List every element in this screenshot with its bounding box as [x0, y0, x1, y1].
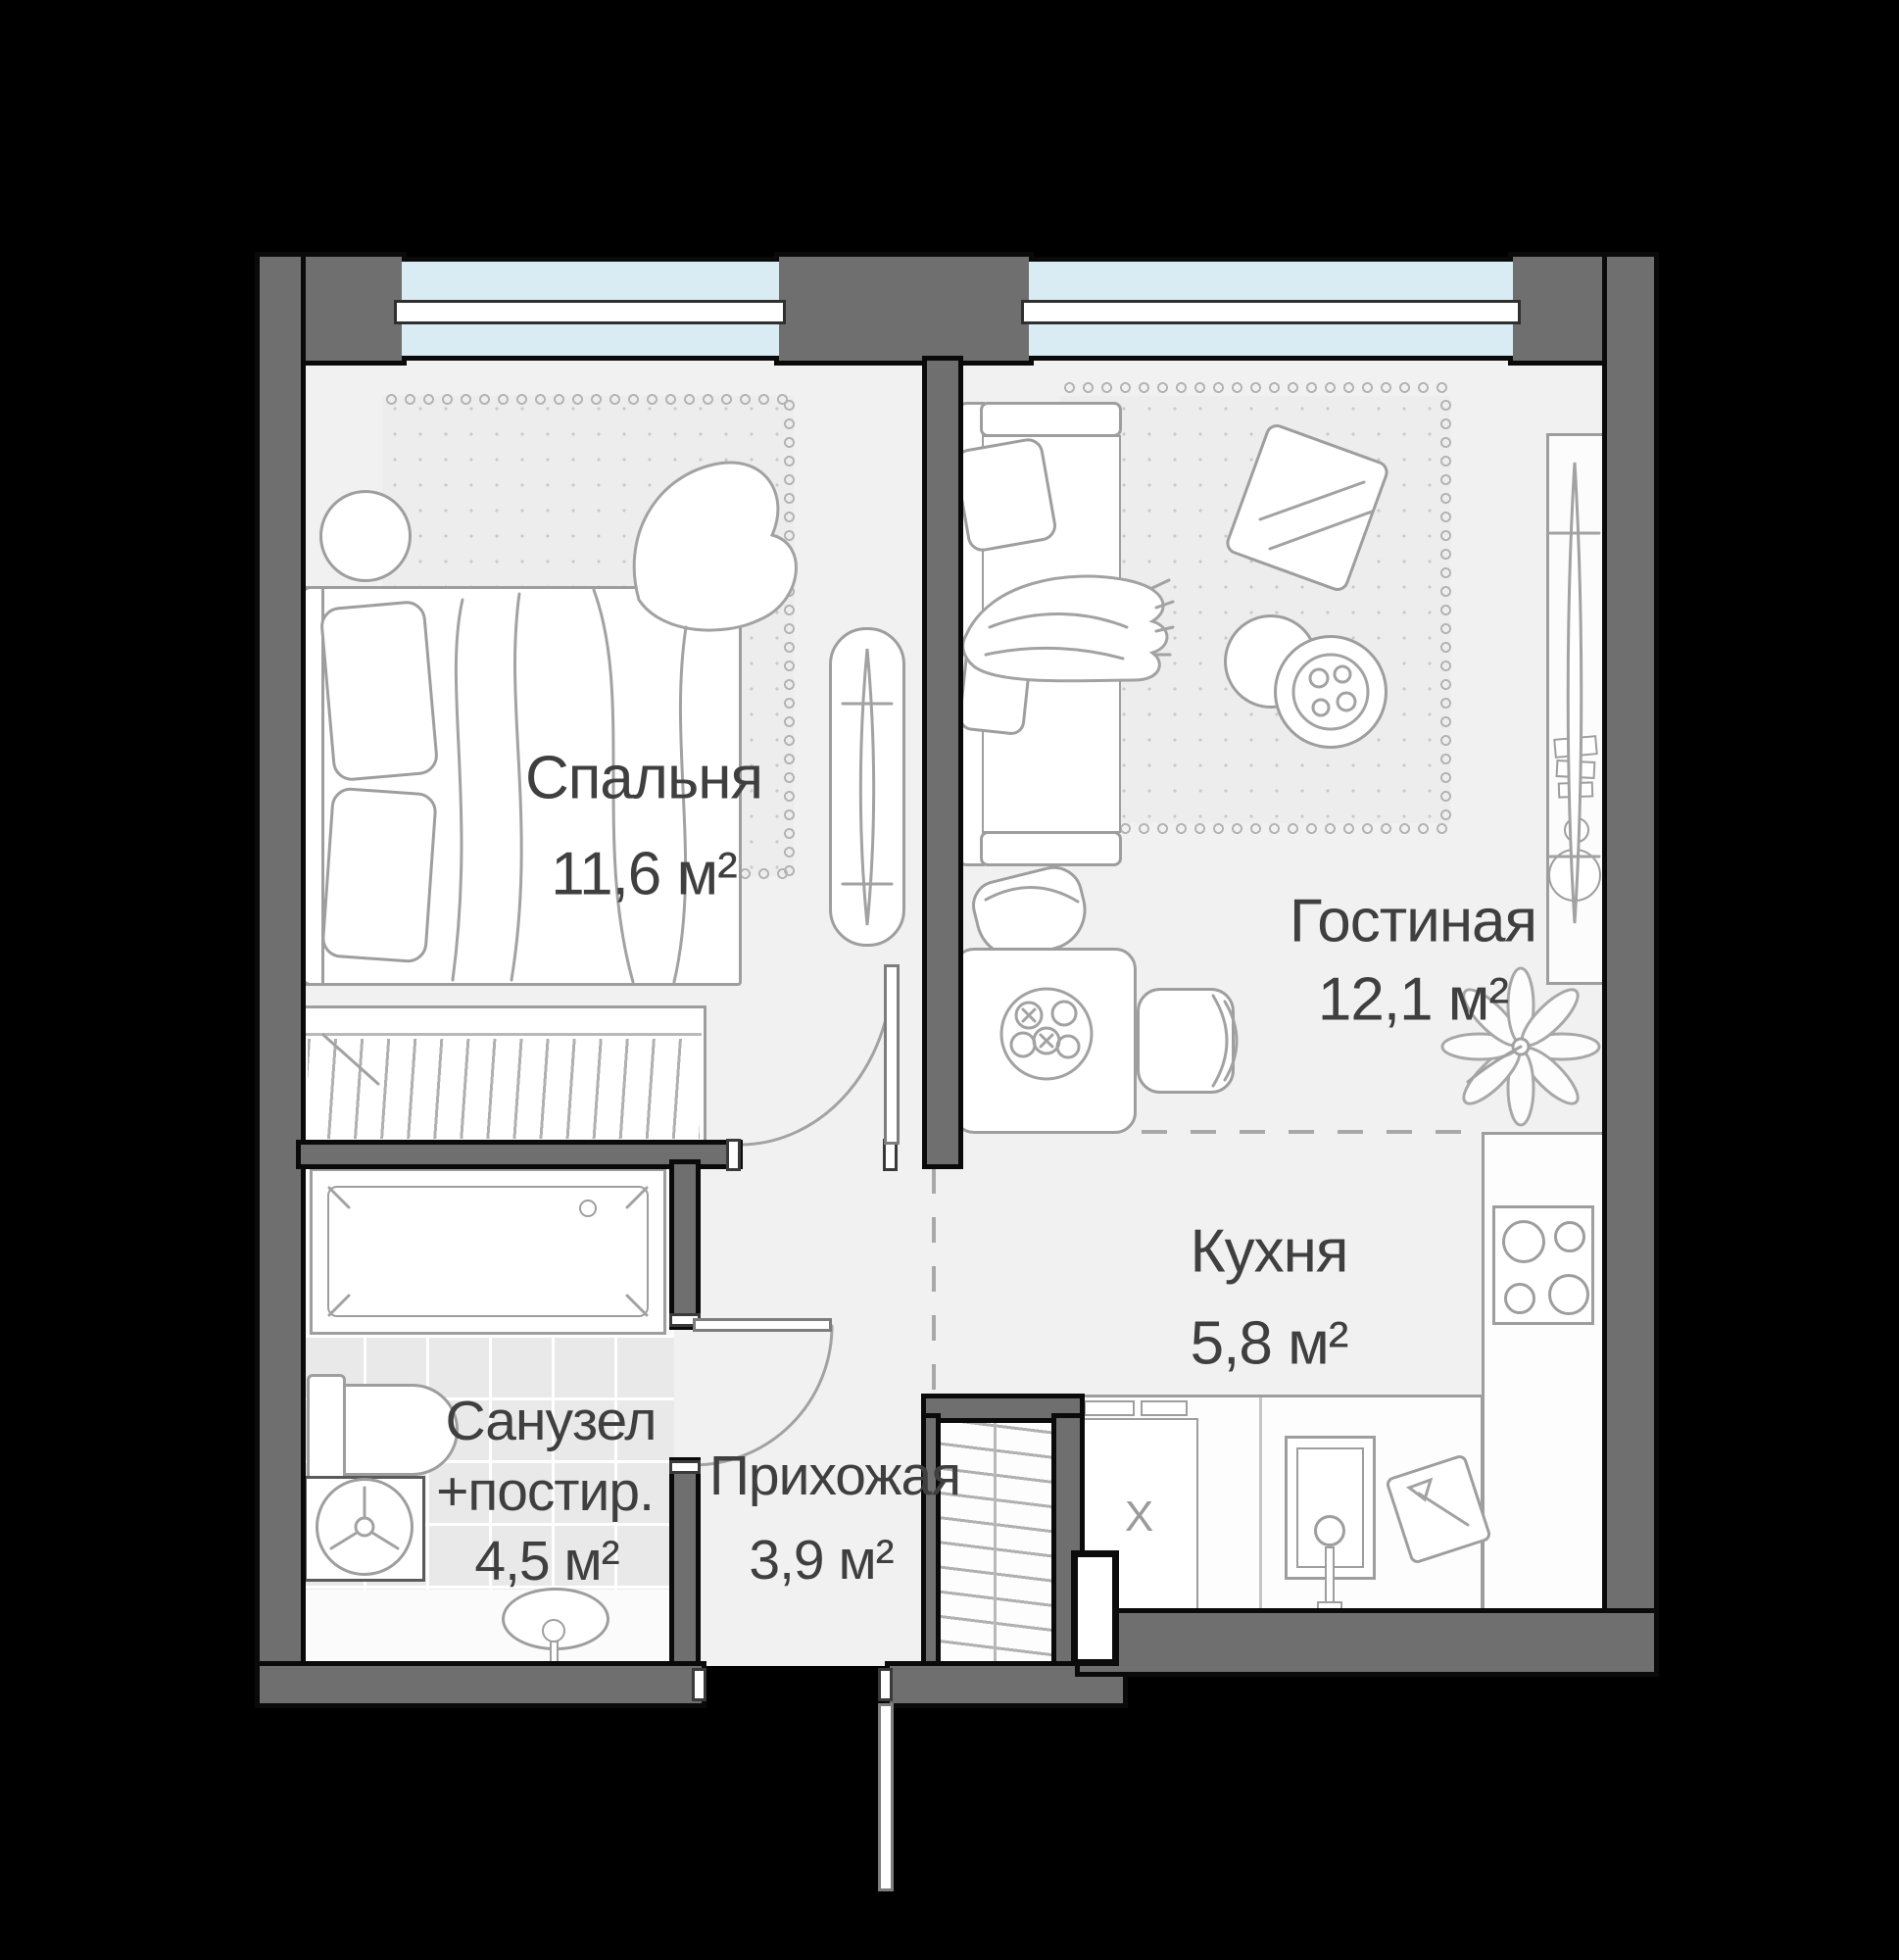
- label-kitchen-name: Кухня: [1191, 1217, 1348, 1287]
- wall-left: [260, 257, 301, 1703]
- entry-door-jamb: [692, 1668, 706, 1701]
- utility-niche: [1071, 1550, 1119, 1666]
- wall-bottom-left: [260, 1666, 702, 1703]
- wall-bathroom-right-lower: [674, 1462, 696, 1666]
- knife: [1409, 1480, 1468, 1525]
- wall-top-middle-pier: [779, 257, 1029, 361]
- wall-closet-top: [926, 1398, 1080, 1418]
- wall-bedroom-door: [301, 1145, 738, 1164]
- pouf-fold: [1260, 482, 1364, 519]
- label-hall-name: Прихожая: [709, 1444, 960, 1508]
- pouf-fold: [1270, 512, 1372, 549]
- picture-frame-diagonal: [323, 1035, 378, 1084]
- chair-backrest-line: [986, 887, 1078, 902]
- plate-with-food: [1001, 989, 1092, 1079]
- label-kitchen-area: 5,8 м²: [1191, 1309, 1348, 1379]
- washing-machine-symbol: [331, 1488, 398, 1548]
- bathroom-door-jamb: [669, 1460, 701, 1474]
- bathtub-bevels: [329, 1188, 647, 1315]
- bedroom-door-leaf: [884, 964, 900, 1145]
- entry-door-leaf: [878, 1703, 894, 1891]
- sofa-throw-sketch: [963, 576, 1173, 681]
- label-bathroom-name: Санузел: [445, 1389, 656, 1453]
- coffee-table-decor: [1293, 655, 1368, 729]
- radiator-glass: [1550, 463, 1599, 923]
- window-living-frame: [1021, 300, 1521, 324]
- bathroom-door-leaf: [693, 1318, 832, 1332]
- label-hall-area: 3,9 м²: [749, 1528, 893, 1592]
- bedroom-door-jamb: [726, 1139, 741, 1171]
- entry-door-jamb: [878, 1668, 893, 1701]
- bedroom-door-arc: [742, 966, 893, 1145]
- wall-partition-living: [927, 361, 958, 1164]
- wall-bathroom-right-upper: [674, 1164, 696, 1325]
- dishwasher-marker: X: [1125, 1493, 1152, 1542]
- label-bathroom-area: 4,5 м²: [474, 1529, 618, 1593]
- label-living-name: Гостиная: [1290, 887, 1536, 956]
- floor-plan-canvas: X: [0, 0, 1899, 1960]
- window-bedroom-frame: [394, 300, 786, 324]
- wall-bottom-kitchen: [1080, 1613, 1654, 1672]
- wall-right: [1607, 257, 1654, 1672]
- chair-backrest-line: [1213, 996, 1227, 1086]
- label-bathroom-name2: +постир.: [436, 1459, 654, 1524]
- floor-mirror-glass: [843, 649, 892, 925]
- label-bedroom-area: 11,6 м²: [551, 840, 737, 909]
- label-bedroom-name: Спальня: [525, 744, 762, 813]
- label-living-area: 12,1 м²: [1318, 965, 1508, 1035]
